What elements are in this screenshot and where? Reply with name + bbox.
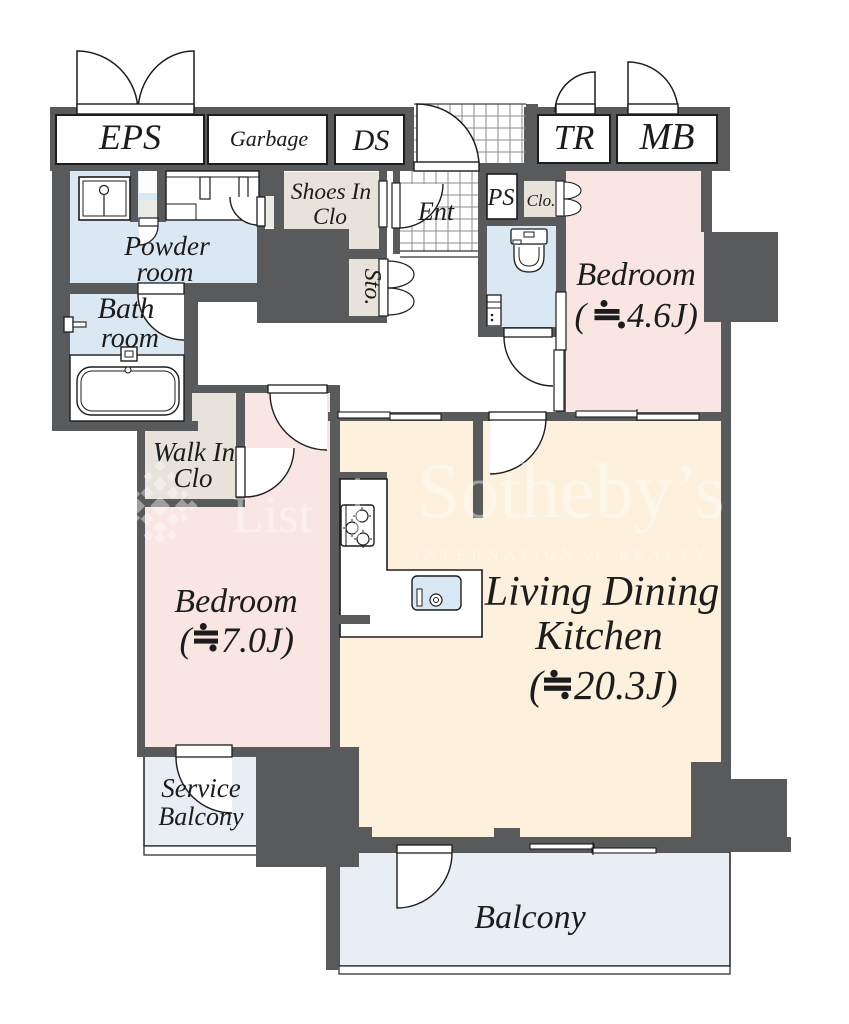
- svg-text:Bath: Bath: [98, 292, 155, 325]
- svg-text:List: List: [232, 487, 313, 544]
- svg-text:Balcony: Balcony: [158, 802, 244, 831]
- svg-text:room: room: [136, 256, 193, 287]
- svg-text:DS: DS: [352, 124, 390, 157]
- svg-text:Bedroom: Bedroom: [174, 583, 297, 620]
- svg-text:Clo: Clo: [313, 204, 347, 230]
- svg-text:(: (: [529, 662, 545, 708]
- svg-text:Shoes In: Shoes In: [291, 179, 371, 205]
- svg-text:Garbage: Garbage: [230, 126, 308, 151]
- svg-text:TR: TR: [554, 118, 595, 157]
- svg-text:Sto.: Sto.: [359, 269, 385, 306]
- svg-text:room: room: [101, 323, 159, 354]
- svg-text:Clo: Clo: [173, 463, 212, 493]
- svg-text:EPS: EPS: [98, 117, 161, 157]
- svg-text:Clo.: Clo.: [527, 191, 556, 210]
- svg-text:Living Dining: Living Dining: [484, 569, 720, 615]
- svg-text:Balcony: Balcony: [474, 899, 586, 936]
- svg-text:MB: MB: [639, 116, 695, 158]
- svg-text:Ent: Ent: [417, 197, 455, 226]
- svg-text:(: (: [180, 620, 194, 660]
- svg-text:Sotheby’s: Sotheby’s: [417, 447, 725, 534]
- svg-text:4.6J): 4.6J): [627, 296, 698, 335]
- svg-text:PS: PS: [487, 185, 515, 211]
- svg-text:Kitchen: Kitchen: [534, 612, 663, 658]
- svg-text:20.3J): 20.3J): [574, 662, 678, 708]
- svg-text:7.0J): 7.0J): [221, 620, 294, 660]
- svg-text:Service: Service: [161, 773, 240, 803]
- svg-text:INTERNATIONAL REALTY: INTERNATIONAL REALTY: [414, 547, 711, 564]
- svg-text:Bedroom: Bedroom: [576, 257, 696, 293]
